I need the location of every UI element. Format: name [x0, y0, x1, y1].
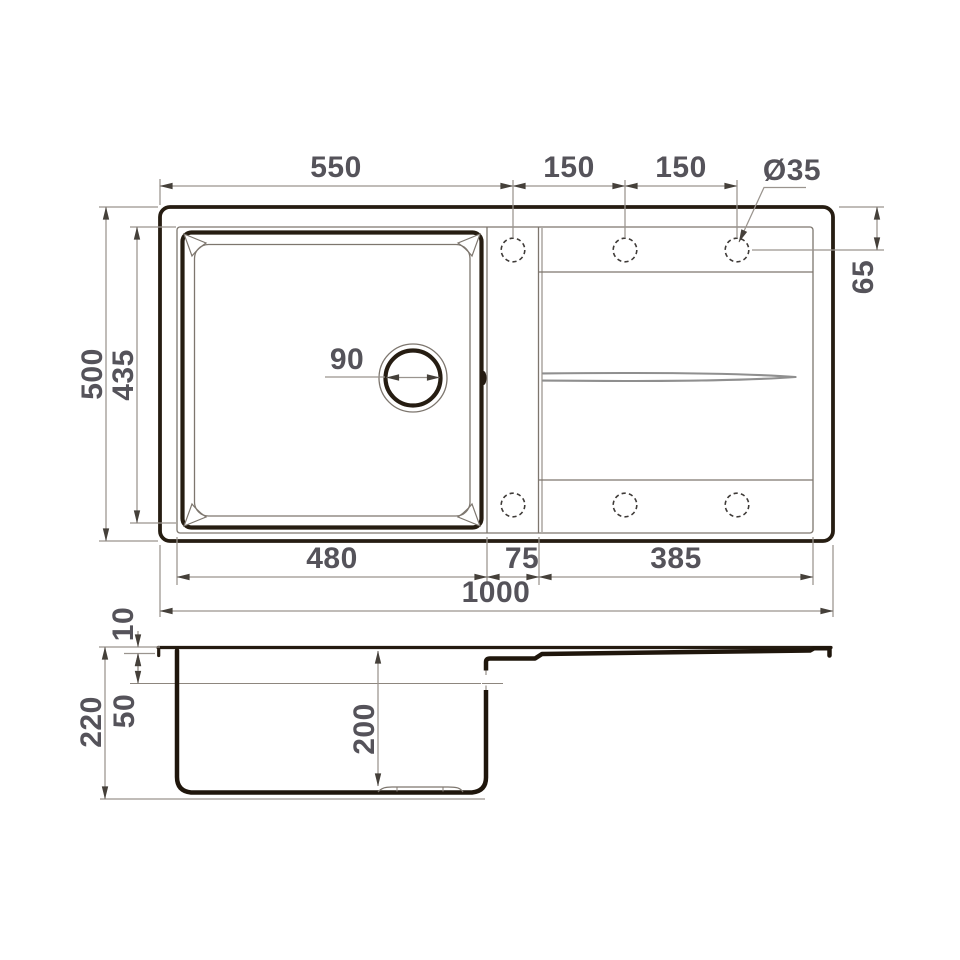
dim-label-150a: 150 [543, 151, 595, 184]
bowl-floor-edge [195, 245, 471, 517]
faucet-hole-marker [725, 493, 749, 517]
dim-bowl-depth-435: 435 [107, 227, 176, 523]
dim-label-435: 435 [107, 349, 140, 401]
dim-drain-90: 90 [325, 343, 440, 378]
overflow-notch [481, 371, 487, 385]
faucet-hole-marker [725, 238, 749, 262]
side-view: 10 220 50 200 [75, 607, 831, 799]
dim-hole-offset-65: 65 [752, 207, 884, 294]
dim-label-10: 10 [107, 607, 140, 641]
dim-rim-height-10: 10 [107, 607, 160, 670]
dim-label-1000: 1000 [462, 576, 531, 609]
dim-overflow-level-50: 50 [108, 654, 141, 729]
dim-label-550: 550 [310, 151, 362, 184]
dim-label-150b: 150 [655, 151, 707, 184]
dim-gap-75: 75 [487, 542, 539, 577]
dim-overall-width-1000: 1000 [160, 576, 833, 611]
dim-hole-pitch-150a: 150 [513, 151, 625, 186]
dim-label-500: 500 [76, 348, 109, 400]
faucet-hole-marker [501, 238, 525, 262]
technical-drawing: 550 150 150 Ø35 500 435 [0, 0, 960, 960]
dim-label-200: 200 [348, 703, 381, 755]
dim-label-385: 385 [650, 542, 702, 575]
drain-channel-groove [543, 377, 796, 381]
bowl [183, 227, 488, 533]
faucet-hole-marker [613, 493, 637, 517]
faucet-hole-marker [613, 238, 637, 262]
bowl-rim [183, 233, 482, 528]
dim-bowl-depth-200: 200 [348, 651, 381, 786]
dim-label-dia35: Ø35 [763, 154, 821, 187]
drain-channel-groove [543, 373, 796, 377]
dim-hole-pitch-150b: 150 [625, 151, 737, 186]
dim-label-480: 480 [306, 542, 358, 575]
drainboard [539, 227, 814, 533]
faucet-hole-marker [501, 493, 525, 517]
dim-label-90: 90 [330, 343, 364, 376]
dim-hole-diameter: Ø35 [739, 154, 821, 242]
dim-top-width-550: 550 [160, 151, 513, 205]
dim-bowl-width-480: 480 [177, 542, 487, 577]
top-view: 550 150 150 Ø35 500 435 [76, 151, 884, 617]
drawing-canvas: 550 150 150 Ø35 500 435 [0, 0, 960, 960]
section-profile [177, 648, 830, 792]
dim-label-50: 50 [108, 694, 141, 728]
dim-label-220: 220 [75, 696, 108, 748]
dim-label-65: 65 [847, 260, 880, 294]
dim-drainboard-385: 385 [539, 542, 813, 577]
dim-label-75: 75 [505, 542, 539, 575]
